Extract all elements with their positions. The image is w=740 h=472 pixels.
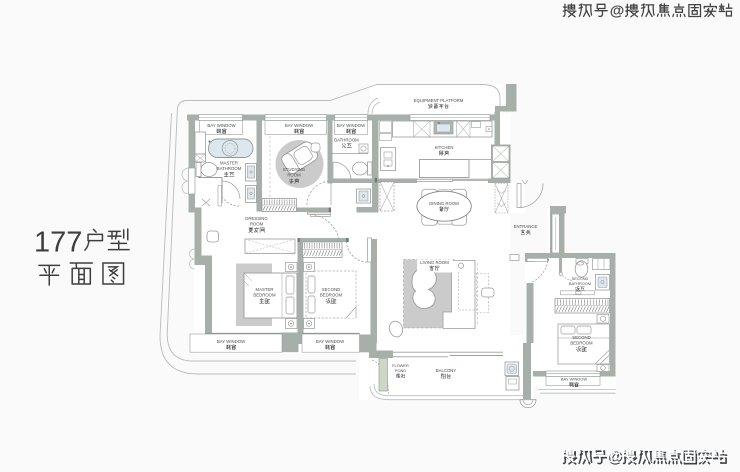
svg-text:@: @ bbox=[610, 4, 625, 20]
svg-text:BALCONY: BALCONY bbox=[436, 368, 457, 373]
svg-text:SECOND: SECOND bbox=[322, 287, 340, 292]
svg-text:ROOM: ROOM bbox=[287, 173, 301, 178]
svg-text:POND: POND bbox=[395, 368, 406, 373]
svg-text:BEDROOM: BEDROOM bbox=[320, 293, 343, 298]
svg-text:BAY WINDOW: BAY WINDOW bbox=[316, 339, 345, 344]
svg-text:@: @ bbox=[606, 448, 621, 465]
svg-text:BEDROOM: BEDROOM bbox=[253, 293, 276, 298]
svg-text:MASTER: MASTER bbox=[220, 161, 238, 166]
svg-text:KITCHEN: KITCHEN bbox=[435, 145, 454, 150]
svg-text:BEDROOM: BEDROOM bbox=[570, 341, 593, 346]
svg-text:BAY WINDOW: BAY WINDOW bbox=[561, 377, 588, 382]
svg-text:SECOND: SECOND bbox=[572, 335, 590, 340]
svg-text:177: 177 bbox=[34, 227, 82, 259]
svg-text:ROOM: ROOM bbox=[250, 222, 264, 227]
svg-text:BATHROOM: BATHROOM bbox=[217, 166, 242, 171]
svg-text:BATHROOM: BATHROOM bbox=[569, 281, 591, 286]
svg-text:STUDYING: STUDYING bbox=[283, 167, 306, 172]
svg-text:EQUIPMENT PLATFORM: EQUIPMENT PLATFORM bbox=[414, 98, 464, 103]
svg-text:MASTER: MASTER bbox=[256, 287, 274, 292]
svg-text:BAY WINDOW: BAY WINDOW bbox=[207, 123, 236, 128]
svg-text:BATHROOM: BATHROOM bbox=[334, 137, 359, 142]
svg-text:ENTRANCE: ENTRANCE bbox=[514, 224, 538, 229]
svg-text:LIVING ROOM: LIVING ROOM bbox=[420, 260, 449, 265]
svg-text:BAY WINDOW: BAY WINDOW bbox=[285, 123, 314, 128]
svg-text:DRESSING: DRESSING bbox=[245, 216, 268, 221]
svg-text:BAY WINDOW: BAY WINDOW bbox=[337, 123, 366, 128]
svg-text:DINING ROOM: DINING ROOM bbox=[429, 201, 459, 206]
svg-text:BAY WINDOW: BAY WINDOW bbox=[217, 339, 246, 344]
